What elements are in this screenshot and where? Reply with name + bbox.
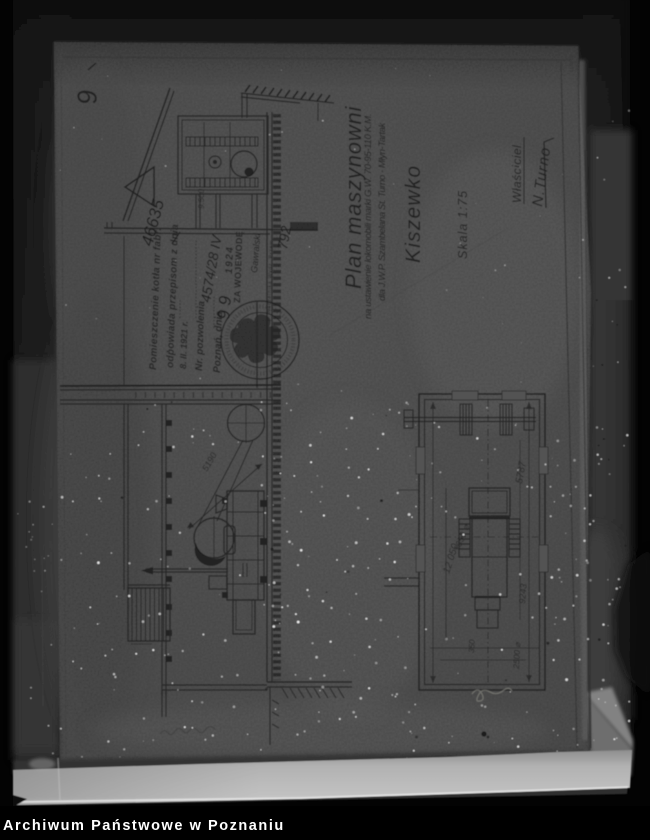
svg-text:9: 9: [72, 89, 103, 107]
svg-text:115610: 115610: [569, 54, 574, 72]
svg-text:9243: 9243: [517, 583, 529, 604]
svg-text:350: 350: [467, 639, 477, 653]
svg-text:Skala 1:75: Skala 1:75: [456, 190, 470, 259]
svg-text:9.500: 9.500: [197, 188, 206, 209]
svg-text:dla J.W.P. Szambelana St. Turn: dla J.W.P. Szambelana St. Turno - Młyn-T…: [377, 121, 388, 301]
svg-text:9 9: 9 9: [214, 295, 235, 321]
svg-text:8. II. 1921 r.: 8. II. 1921 r.: [178, 321, 190, 369]
svg-text:2500 ⌀: 2500 ⌀: [511, 641, 522, 670]
svg-text:na ustawienie lokomobili marki: na ustawienie lokomobili marki G.W. 70-9…: [363, 114, 374, 319]
svg-text:Archiwum Państwowe w Poznaniu: Archiwum Państwowe w Poznaniu: [3, 818, 285, 834]
svg-text:Kiszewko: Kiszewko: [402, 165, 425, 263]
svg-text:Właściciel: Właściciel: [510, 145, 524, 203]
